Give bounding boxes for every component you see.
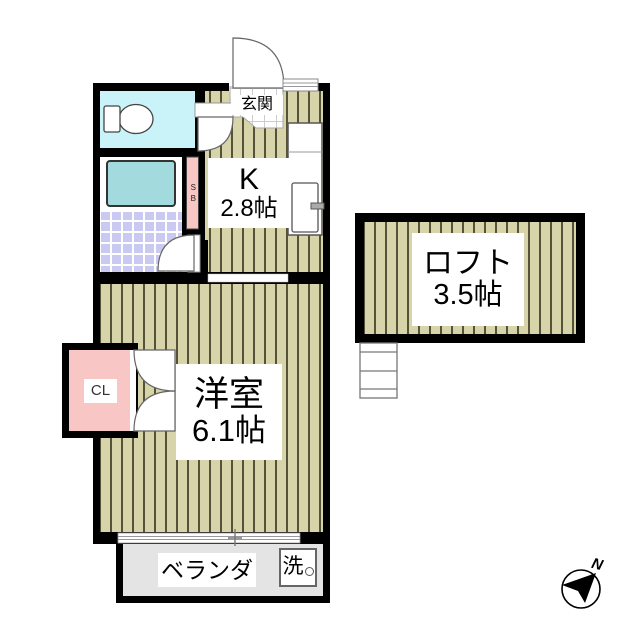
entrance-door-arc [233,38,284,88]
western-room-name: 洋室 [194,376,264,414]
washing-machine-label: 洗 [283,556,304,579]
western-room-size: 6.1帖 [192,414,266,447]
closet-label: CL [84,379,117,403]
floor-plan: 玄関 K 2.8帖 ロフト 3.5帖 洋室 6.1帖 CL ベランダ 洗 SB … [0,0,640,640]
washing-machine-symbol: 洗 [279,548,317,587]
bathtub [107,161,175,206]
ladder-icon [360,343,397,398]
floor-plan-drawing [0,0,640,640]
loft-name: ロフト [423,248,513,280]
loft-size: 3.5帖 [433,280,502,311]
compass-icon [562,570,600,608]
shoe-box-label: SB [186,163,199,225]
veranda-label: ベランダ [158,553,256,587]
western-room-label: 洋室 6.1帖 [176,364,282,460]
kitchen-window [283,79,318,91]
kitchen-label: K 2.8帖 [208,158,290,228]
loft-label: ロフト 3.5帖 [412,233,524,326]
faucet-icon [311,203,324,209]
kitchen-size: 2.8帖 [220,196,277,222]
toilet-icon [104,105,153,134]
genkan-label: 玄関 [231,95,283,115]
washing-machine-circle-icon [305,567,314,576]
kitchen-name: K [239,164,259,196]
doorway-opening [208,274,288,282]
kitchen-counter [288,123,324,235]
